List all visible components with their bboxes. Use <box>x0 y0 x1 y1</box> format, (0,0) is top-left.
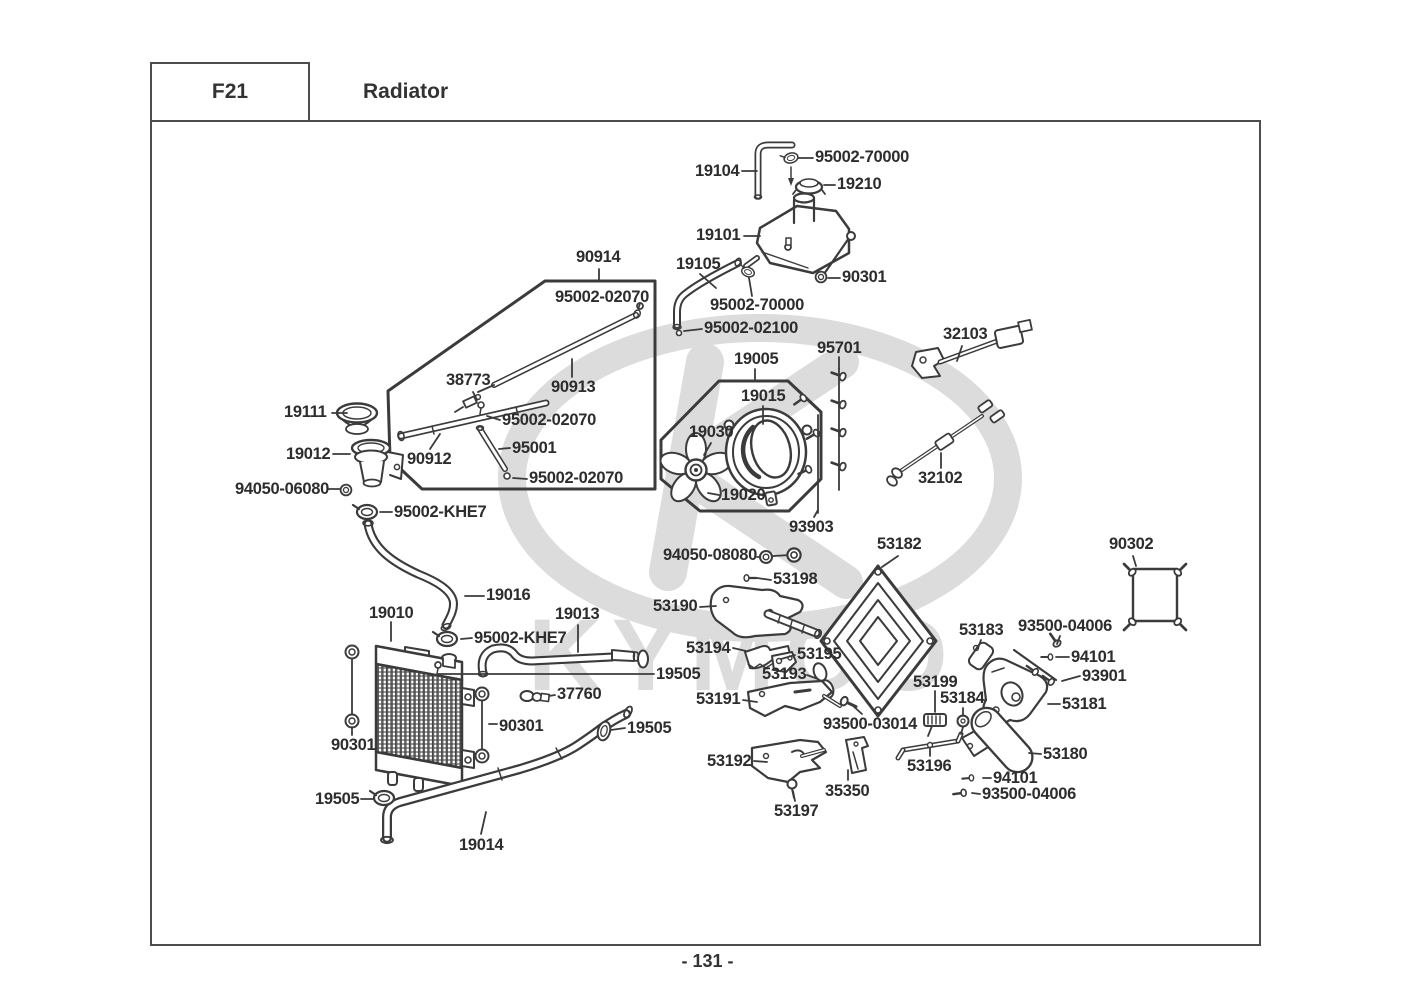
filler-cap-19111 <box>337 404 377 435</box>
part-label-53182: 53182 <box>877 535 921 553</box>
part-label-90913: 90913 <box>551 378 595 396</box>
part-label-90912: 90912 <box>407 450 451 468</box>
part-label-32103: 32103 <box>943 325 987 343</box>
bracket-35350 <box>846 737 868 773</box>
reservoir-cap-19210 <box>793 179 825 194</box>
page-number: - 131 - <box>0 951 1415 972</box>
part-label-53197: 53197 <box>774 802 818 820</box>
part-label-95002-70000: 95002-70000 <box>815 148 909 166</box>
part-label-37760: 37760 <box>557 685 601 703</box>
part-label-94050-06080: 94050-06080 <box>235 480 329 498</box>
part-label-90302: 90302 <box>1109 535 1153 553</box>
part-label-19014: 19014 <box>459 836 503 854</box>
part-label-93901: 93901 <box>1082 667 1126 685</box>
exploded-diagram: KYMCO <box>0 0 1415 1000</box>
part-label-19015: 19015 <box>741 387 785 405</box>
part-label-93500-04006: 93500-04006 <box>1018 617 1112 635</box>
part-label-94050-08080: 94050-08080 <box>663 546 757 564</box>
screw-94101-upper <box>1041 654 1052 660</box>
radiator-19010 <box>376 646 474 791</box>
part-label-35350: 35350 <box>825 782 869 800</box>
part-label-90301: 90301 <box>331 736 375 754</box>
clamp-95002-khe7-upper <box>353 505 377 519</box>
part-label-95002-02070: 95002-02070 <box>555 288 649 306</box>
part-label-53192: 53192 <box>707 752 751 770</box>
screw-53198 <box>744 575 756 582</box>
part-label-53180: 53180 <box>1043 745 1087 763</box>
part-label-19101: 19101 <box>696 226 740 244</box>
part-label-19505: 19505 <box>656 665 700 683</box>
screw-94101-lower <box>962 775 974 782</box>
joint-38773 <box>455 395 484 414</box>
part-label-95002-khe7: 95002-KHE7 <box>474 629 566 647</box>
part-label-53190: 53190 <box>653 597 697 615</box>
part-label-53193: 53193 <box>762 665 806 683</box>
part-label-32102: 32102 <box>918 469 962 487</box>
bolt-53197 <box>788 780 797 799</box>
part-label-93500-04006: 93500-04006 <box>982 785 1076 803</box>
nut-94050-06080 <box>341 485 352 496</box>
part-label-95001: 95001 <box>512 439 556 457</box>
filler-neck-19012 <box>352 440 403 487</box>
part-label-19505: 19505 <box>627 719 671 737</box>
radiator-washers-90301-left <box>346 646 359 728</box>
part-label-53181: 53181 <box>1062 695 1106 713</box>
part-label-19005: 19005 <box>734 350 778 368</box>
part-label-53191: 53191 <box>696 690 740 708</box>
catalog-page: F21 Radiator <box>0 0 1415 1000</box>
part-label-95002-02100: 95002-02100 <box>704 319 798 337</box>
part-label-90914: 90914 <box>576 248 620 266</box>
clamp-95002-khe7-lower <box>433 632 457 646</box>
part-label-53194: 53194 <box>686 639 730 657</box>
part-label-19030: 19030 <box>689 423 733 441</box>
part-label-38773: 38773 <box>446 371 490 389</box>
part-label-19505: 19505 <box>315 790 359 808</box>
overflow-hose-19104 <box>755 145 800 199</box>
part-label-95002-khe7: 95002-KHE7 <box>394 503 486 521</box>
part-label-19210: 19210 <box>837 175 881 193</box>
part-label-19104: 19104 <box>695 162 739 180</box>
part-label-93903: 93903 <box>789 518 833 536</box>
screw-93500-04006-lower <box>953 789 967 798</box>
part-label-53196: 53196 <box>907 757 951 775</box>
part-label-94101: 94101 <box>1071 648 1115 666</box>
part-label-90301: 90301 <box>842 268 886 286</box>
part-label-19016: 19016 <box>486 586 530 604</box>
grommet-53184 <box>958 716 969 735</box>
grommet-53199 <box>924 714 946 736</box>
part-label-19013: 19013 <box>555 605 599 623</box>
part-label-19012: 19012 <box>286 445 330 463</box>
part-label-93500-03014: 93500-03014 <box>823 715 917 733</box>
part-label-95002-02070: 95002-02070 <box>502 411 596 429</box>
part-label-53195: 53195 <box>797 645 841 663</box>
part-label-19111: 19111 <box>284 403 327 421</box>
part-label-53198: 53198 <box>773 570 817 588</box>
radiator-washers-90301-mid <box>476 688 489 763</box>
part-label-90301: 90301 <box>499 717 543 735</box>
bracket-frame-90302 <box>1121 561 1189 633</box>
part-label-53184: 53184 <box>940 689 984 707</box>
part-label-95002-02070: 95002-02070 <box>529 469 623 487</box>
part-label-53183: 53183 <box>959 621 1003 639</box>
clamp-19505-bottom <box>370 791 394 805</box>
part-label-95701: 95701 <box>817 339 861 357</box>
part-label-19020: 19020 <box>721 486 765 504</box>
part-label-95002-70000: 95002-70000 <box>710 296 804 314</box>
part-label-19105: 19105 <box>676 255 720 273</box>
part-label-19010: 19010 <box>369 604 413 622</box>
